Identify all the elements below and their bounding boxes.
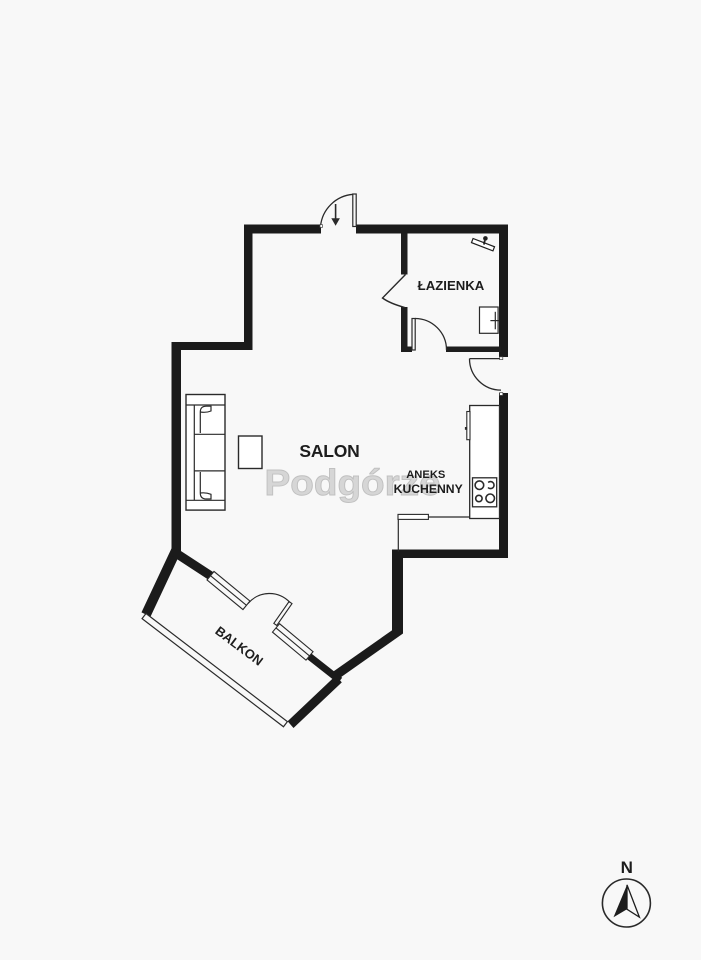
svg-text:SALON: SALON xyxy=(299,441,359,461)
svg-text:KUCHENNY: KUCHENNY xyxy=(394,482,463,496)
svg-text:ŁAZIENKA: ŁAZIENKA xyxy=(418,278,485,293)
svg-text:N: N xyxy=(621,858,633,877)
svg-text:ANEKS: ANEKS xyxy=(406,469,446,481)
